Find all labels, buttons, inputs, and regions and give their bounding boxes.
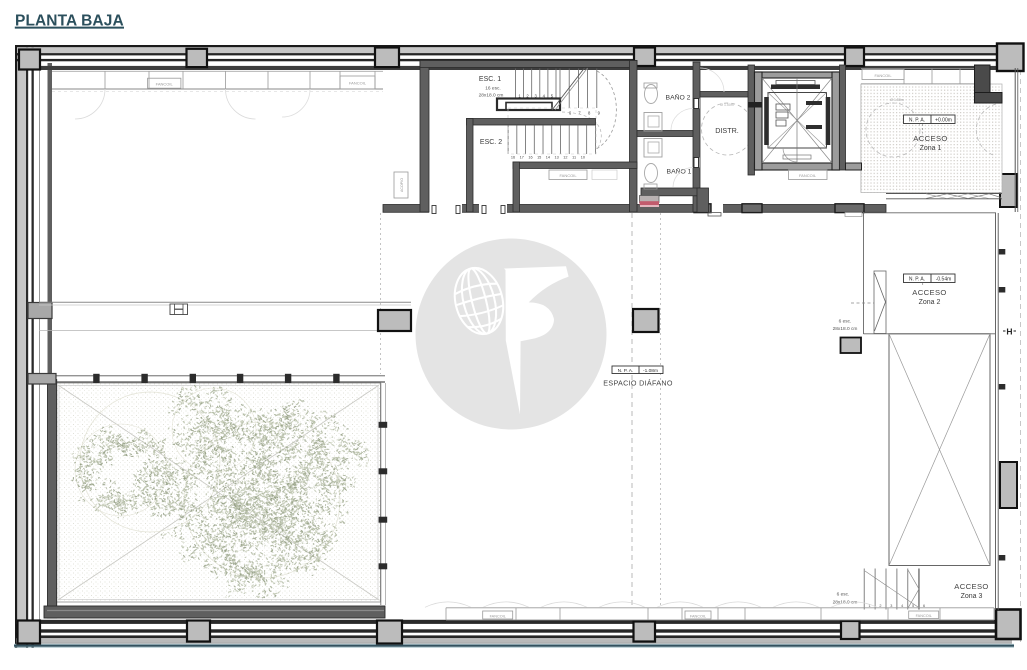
svg-text:ACCESO: ACCESO bbox=[912, 288, 946, 297]
svg-text:Ø 1.50m: Ø 1.50m bbox=[890, 98, 904, 102]
svg-text:6 esc.: 6 esc. bbox=[839, 319, 852, 325]
svg-text:10: 10 bbox=[581, 156, 585, 160]
svg-text:13: 13 bbox=[555, 156, 559, 160]
svg-text:16 esc.: 16 esc. bbox=[485, 86, 500, 92]
svg-text:ESC. 2: ESC. 2 bbox=[480, 139, 502, 146]
svg-text:ACCESO: ACCESO bbox=[954, 582, 988, 591]
svg-text:FANCOIL: FANCOIL bbox=[916, 614, 932, 618]
svg-text:Zona 2: Zona 2 bbox=[919, 299, 941, 306]
svg-text:12: 12 bbox=[563, 156, 567, 160]
svg-text:6 esc.: 6 esc. bbox=[837, 592, 850, 598]
svg-text:15: 15 bbox=[537, 156, 541, 160]
svg-text:FANCOIL: FANCOIL bbox=[490, 615, 506, 619]
svg-text:FANCOIL: FANCOIL bbox=[349, 81, 367, 86]
svg-text:16: 16 bbox=[528, 156, 532, 160]
svg-text:14: 14 bbox=[546, 156, 550, 160]
svg-text:FANCOIL: FANCOIL bbox=[559, 173, 577, 178]
svg-text:Zona 1: Zona 1 bbox=[920, 145, 942, 152]
svg-text:ESC. 1: ESC. 1 bbox=[479, 76, 501, 83]
svg-text:Zona 3: Zona 3 bbox=[961, 593, 983, 600]
svg-text:DISTR.: DISTR. bbox=[715, 126, 739, 135]
svg-text:11: 11 bbox=[572, 156, 576, 160]
svg-text:FANCOIL: FANCOIL bbox=[156, 82, 174, 87]
svg-text:16: 16 bbox=[511, 156, 515, 160]
svg-text:+0.00m: +0.00m bbox=[935, 118, 952, 124]
svg-text:Ø 1.50m: Ø 1.50m bbox=[720, 103, 734, 107]
svg-text:-0.54m: -0.54m bbox=[936, 277, 952, 283]
svg-text:N. P. A.: N. P. A. bbox=[618, 368, 634, 374]
svg-text:-1.08m: -1.08m bbox=[643, 368, 658, 374]
svg-text:17: 17 bbox=[520, 156, 524, 160]
svg-text:ACCESO: ACCESO bbox=[913, 134, 947, 143]
svg-text:ESPACIO DIÁFANO: ESPACIO DIÁFANO bbox=[603, 379, 673, 388]
svg-text:FANCOIL: FANCOIL bbox=[874, 73, 892, 78]
svg-text:28x18.0 cm: 28x18.0 cm bbox=[833, 326, 858, 332]
svg-text:ACOPIO: ACOPIO bbox=[400, 178, 404, 192]
svg-text:N. P. A.: N. P. A. bbox=[909, 277, 925, 283]
svg-text:BAÑO 2: BAÑO 2 bbox=[666, 93, 691, 102]
svg-text:FANCOIL: FANCOIL bbox=[799, 173, 817, 178]
svg-text:H: H bbox=[1006, 327, 1012, 337]
svg-text:28x18.0 cm: 28x18.0 cm bbox=[479, 93, 504, 99]
svg-text:N. P. A.: N. P. A. bbox=[909, 118, 925, 124]
svg-text:FANCOIL: FANCOIL bbox=[690, 615, 706, 619]
